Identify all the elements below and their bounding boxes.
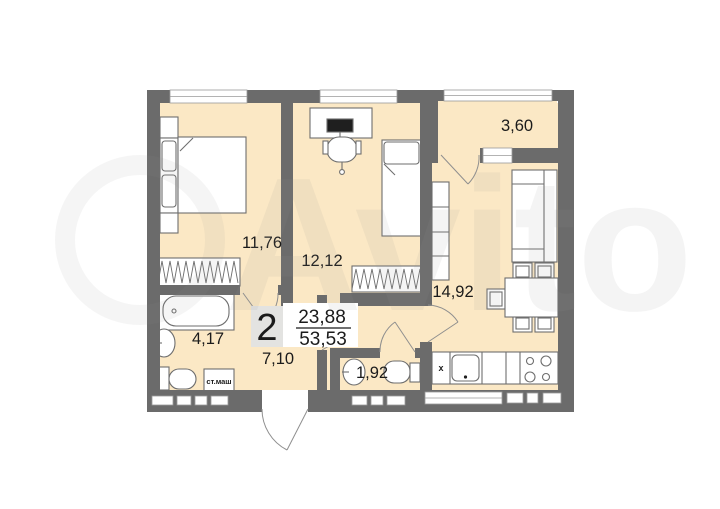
washing-machine-label: ст.маш	[206, 377, 231, 386]
watermark-text: Avito	[225, 139, 693, 351]
window-kitchen-bottom	[425, 392, 502, 404]
window-bedroom2	[320, 90, 397, 103]
window-bedroom1	[170, 90, 247, 103]
kitchen-counter	[432, 352, 558, 384]
sink-x-mark: x	[438, 363, 443, 373]
monitor-icon	[327, 119, 353, 132]
cistern	[410, 363, 420, 382]
window-balcony	[444, 90, 552, 101]
outer-wall-left	[147, 90, 160, 412]
area-label-wc: 1,92	[356, 364, 388, 382]
toilet-bathroom	[158, 367, 196, 390]
toilet-wc	[384, 361, 420, 383]
sink-faucet	[464, 375, 467, 378]
door-entrance	[262, 409, 308, 450]
desk	[310, 108, 372, 138]
floor-plan: ст.маш	[0, 0, 720, 509]
area-label-hallway: 7,10	[262, 350, 294, 368]
area-label-balcony: 3,60	[501, 117, 533, 135]
floor-plan-canvas: ст.маш	[0, 0, 720, 509]
nightstand	[160, 213, 178, 233]
area-label-bathroom: 4,17	[192, 330, 224, 348]
wall-bathroom-hall-lower	[317, 350, 327, 390]
entrance-opening	[262, 390, 308, 412]
nightstand	[160, 117, 178, 138]
toilet-bowl	[169, 369, 196, 389]
